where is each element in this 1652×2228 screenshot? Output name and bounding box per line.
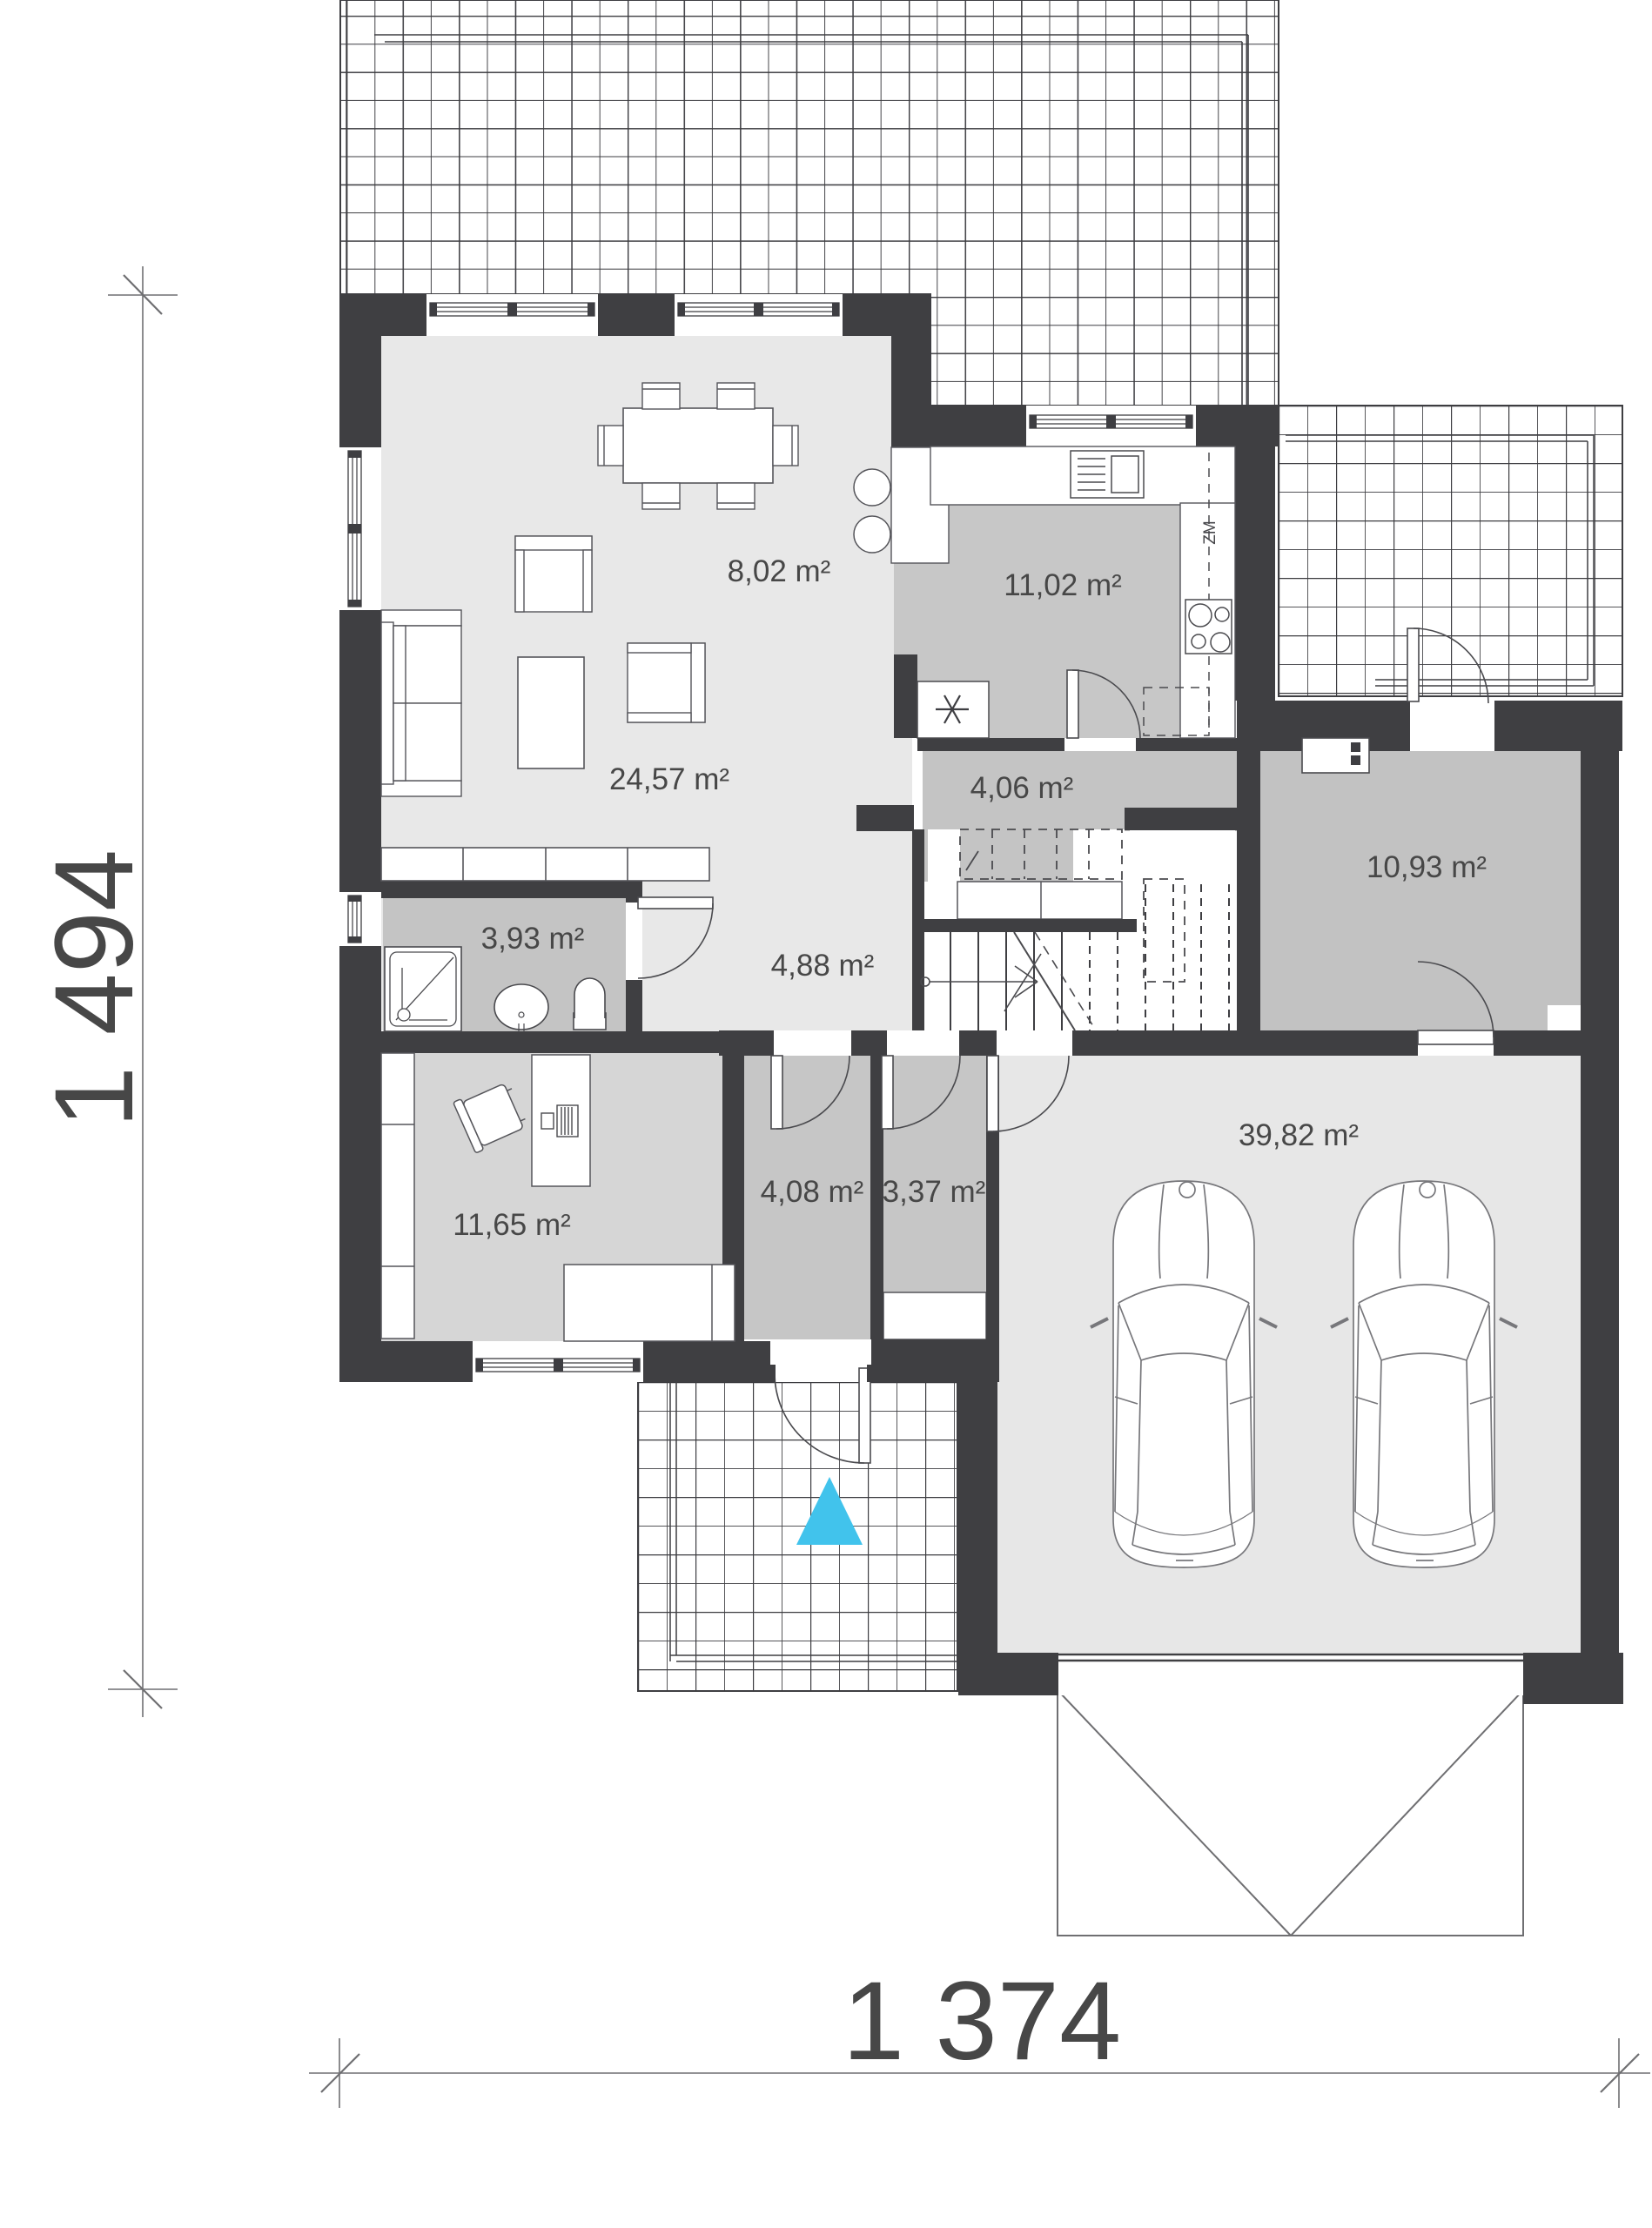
- svg-text:11,02 m²: 11,02 m²: [1004, 568, 1122, 602]
- svg-text:1 374: 1 374: [843, 1959, 1121, 2084]
- svg-text:11,65 m²: 11,65 m²: [453, 1208, 571, 1242]
- svg-text:1 494: 1 494: [32, 849, 157, 1128]
- svg-text:4,08 m²: 4,08 m²: [761, 1175, 864, 1209]
- svg-text:3,37 m²: 3,37 m²: [883, 1175, 986, 1209]
- svg-text:10,93 m²: 10,93 m²: [1367, 850, 1487, 884]
- svg-text:39,82 m²: 39,82 m²: [1239, 1118, 1359, 1152]
- svg-text:4,06 m²: 4,06 m²: [970, 771, 1074, 805]
- svg-text:3,93 m²: 3,93 m²: [481, 922, 585, 956]
- svg-text:4,88 m²: 4,88 m²: [771, 949, 875, 983]
- svg-text:ZM: ZM: [1201, 520, 1219, 544]
- svg-text:8,02 m²: 8,02 m²: [728, 554, 831, 588]
- svg-text:24,57 m²: 24,57 m²: [609, 762, 729, 796]
